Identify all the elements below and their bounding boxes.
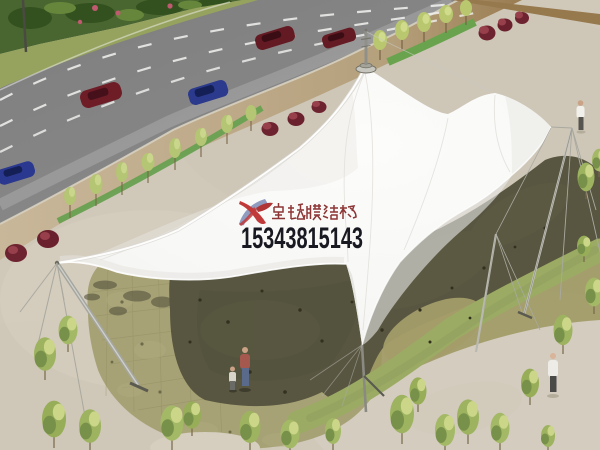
- svg-text:15343815143: 15343815143: [241, 222, 363, 255]
